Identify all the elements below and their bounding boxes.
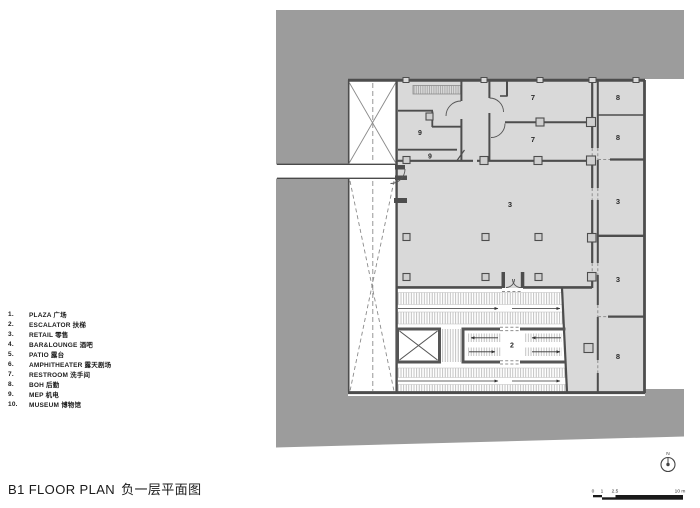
room-label: 8 [616, 133, 620, 142]
legend-number: 1. [8, 311, 29, 318]
north-arrow-icon: N [661, 451, 675, 472]
room-label: 9 [418, 130, 422, 137]
legend-item-boh: 8.BOH 后勤 [8, 379, 238, 389]
legend-item-bar-lounge: 4.BAR&LOUNGE 酒吧 [8, 339, 238, 349]
floor-plan-page: 9 9 7 7 3 2 8 8 3 3 8 N 0 1 2.5 10 m 1.P… [0, 0, 700, 508]
room-label: 3 [616, 197, 620, 206]
entry-slot-lines [277, 164, 396, 178]
legend-label: BAR&LOUNGE 酒吧 [29, 339, 93, 349]
scale-tick-label: 2.5 [612, 489, 619, 495]
legend-item-patio: 5.PATIO 露台 [8, 349, 238, 359]
north-label: N [666, 451, 670, 457]
legend-item-retail: 3.RETAIL 零售 [8, 329, 238, 339]
scale-tick-label: 1 [601, 489, 604, 495]
drawing-title-zh: 负一层平面图 [121, 482, 201, 497]
legend-number: 7. [8, 371, 29, 378]
legend-item-museum: 10.MUSEUM 博物馆 [8, 399, 238, 409]
scale-bar: 0 1 2.5 10 m [592, 489, 686, 500]
legend-label: BOH 后勤 [29, 379, 59, 389]
legend-number: 5. [8, 351, 29, 358]
legend-number: 8. [8, 381, 29, 388]
legend-number: 6. [8, 361, 29, 368]
elevator-shaft [398, 329, 440, 362]
room-label: 9 [428, 154, 432, 161]
legend-label: MEP 机电 [29, 389, 59, 399]
drawing-title-en: B1 FLOOR PLAN [8, 482, 115, 497]
legend-number: 4. [8, 341, 29, 348]
room-label: 8 [616, 93, 620, 102]
legend-number: 2. [8, 321, 29, 328]
room-label: 2 [510, 343, 514, 350]
legend-item-escalator: 2.ESCALATOR 扶梯 [8, 319, 238, 329]
room-label: 8 [616, 352, 620, 361]
drawing-title: B1 FLOOR PLAN负一层平面图 [8, 479, 201, 498]
shaft-cross-lines [350, 83, 396, 391]
legend-label: AMPHITHEATER 露天剧场 [29, 359, 111, 369]
legend-label: PLAZA 广场 [29, 309, 67, 319]
legend-item-restroom: 7.RESTROOM 洗手间 [8, 369, 238, 379]
legend-label: RETAIL 零售 [29, 329, 68, 339]
legend-number: 9. [8, 391, 29, 398]
legend-item-amphitheater: 6.AMPHITHEATER 露天剧场 [8, 359, 238, 369]
room-label: 3 [508, 200, 512, 209]
room-label: 3 [616, 275, 620, 284]
floor-plan-drawing: 9 9 7 7 3 2 8 8 3 3 8 N 0 1 2.5 10 m [0, 0, 700, 508]
legend-label: PATIO 露台 [29, 349, 64, 359]
legend-item-plaza: 1.PLAZA 广场 [8, 309, 238, 319]
legend-number: 3. [8, 331, 29, 338]
room-label: 7 [531, 135, 535, 144]
scale-tick-label: 0 [592, 489, 595, 495]
legend-label: ESCALATOR 扶梯 [29, 319, 86, 329]
scale-tick-label: 10 m [675, 489, 686, 495]
legend: 1.PLAZA 广场 2.ESCALATOR 扶梯 3.RETAIL 零售 4.… [8, 309, 238, 409]
legend-label: MUSEUM 博物馆 [29, 399, 81, 409]
legend-label: RESTROOM 洗手间 [29, 369, 90, 379]
legend-item-mep: 9.MEP 机电 [8, 389, 238, 399]
room-label: 7 [531, 93, 535, 102]
legend-number: 10. [8, 401, 29, 408]
